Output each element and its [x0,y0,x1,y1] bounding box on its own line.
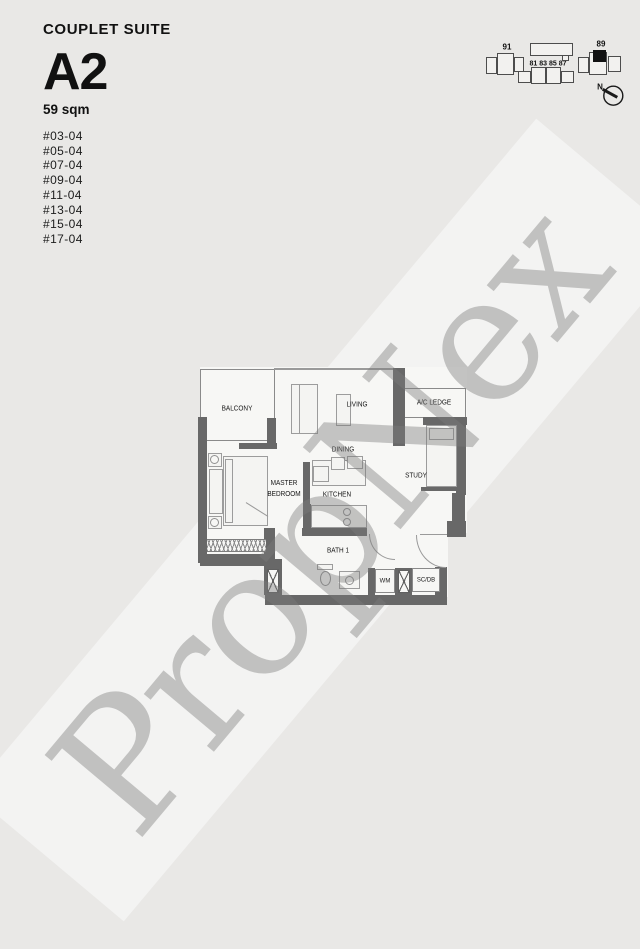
kitchen-counter [311,505,367,528]
hob-burner [343,508,351,516]
block-89-label: 89 [597,40,606,49]
toilet-tank [317,564,333,570]
unit-number-list: #03-04 #05-04 #07-04 #09-04 #11-04 #13-0… [43,129,171,247]
master-bedroom-label-line1: MASTER [267,478,300,489]
kitchen-label: KITCHEN [323,492,351,499]
unit-type-label: A2 [43,50,171,94]
unit-number: #09-04 [43,173,171,188]
building-outline [608,56,621,72]
bed-headboard [209,469,223,514]
unit-number: #03-04 [43,129,171,144]
wardrobe [207,539,266,552]
building-outline [578,57,589,73]
scdb-label: SC/DB [417,577,435,584]
study-ledge [421,487,461,491]
sofa [291,384,318,434]
service-shaft [267,569,279,593]
vanity-basin [345,576,354,585]
master-bedroom-label-line2: BEDROOM [267,489,300,500]
site-key-plan: 91 89 81 83 85 87 N [478,35,632,113]
building-outline [562,55,569,61]
wall [456,421,466,495]
service-shaft [398,570,410,593]
building-outline [518,71,531,83]
building-outline [546,67,561,84]
balcony-label: BALCONY [222,406,253,413]
suite-title: COUPLET SUITE [43,21,171,38]
coffee-table [336,394,351,426]
unit-number: #13-04 [43,203,171,218]
unit-number: #07-04 [43,158,171,173]
dining-chair [313,466,329,482]
header-block: COUPLET SUITE A2 59 sqm #03-04 #05-04 #0… [43,21,171,247]
master-bed-pillow [225,459,233,523]
kitchen-counter-wall [303,504,311,530]
floor-plan: BALCONY LIVING A/C LEDGE DINING MASTER B… [190,357,482,609]
dining-chair [331,457,345,470]
wall [452,493,465,523]
unit-area: 59 sqm [43,102,171,117]
wall [239,443,277,449]
wall [368,568,375,595]
unit-number: #05-04 [43,144,171,159]
building-outline [497,53,514,75]
unit-number: #17-04 [43,232,171,247]
wall [303,462,310,506]
entrance-door-leaf [420,534,447,535]
kitchen-counter-wall [302,528,367,536]
unit-number: #15-04 [43,217,171,232]
dining-chair [347,456,363,469]
wall [198,417,207,563]
wall [265,595,447,605]
wall [393,368,405,446]
building-outline [531,67,546,84]
unit-location-highlight [593,50,606,62]
study-label: STUDY [405,473,427,480]
building-outline [514,57,524,72]
wall [200,554,269,566]
living-label: LIVING [346,402,367,409]
master-bedroom-label: MASTER BEDROOM [267,478,300,500]
floor-plan-page: { "header": { "title": "COUPLET SUITE", … [0,0,640,949]
block-91-label: 91 [503,43,512,52]
toilet-bowl [320,571,331,586]
wm-label: WM [380,578,391,585]
ac-ledge-label: A/C LEDGE [417,400,451,407]
nightstand-lamp [210,518,219,527]
north-arrow-icon [596,81,632,111]
wall [267,418,276,445]
hob-burner [343,518,351,526]
window-wall [274,368,394,370]
sofa-cushion-line [299,385,300,433]
wall [447,521,466,537]
building-outline [561,71,574,83]
study-bed-pillow [429,428,454,440]
building-outline [486,57,497,74]
bath-label: BATH 1 [327,548,349,555]
dining-label: DINING [332,447,355,454]
nightstand-lamp [210,455,219,464]
unit-number: #11-04 [43,188,171,203]
